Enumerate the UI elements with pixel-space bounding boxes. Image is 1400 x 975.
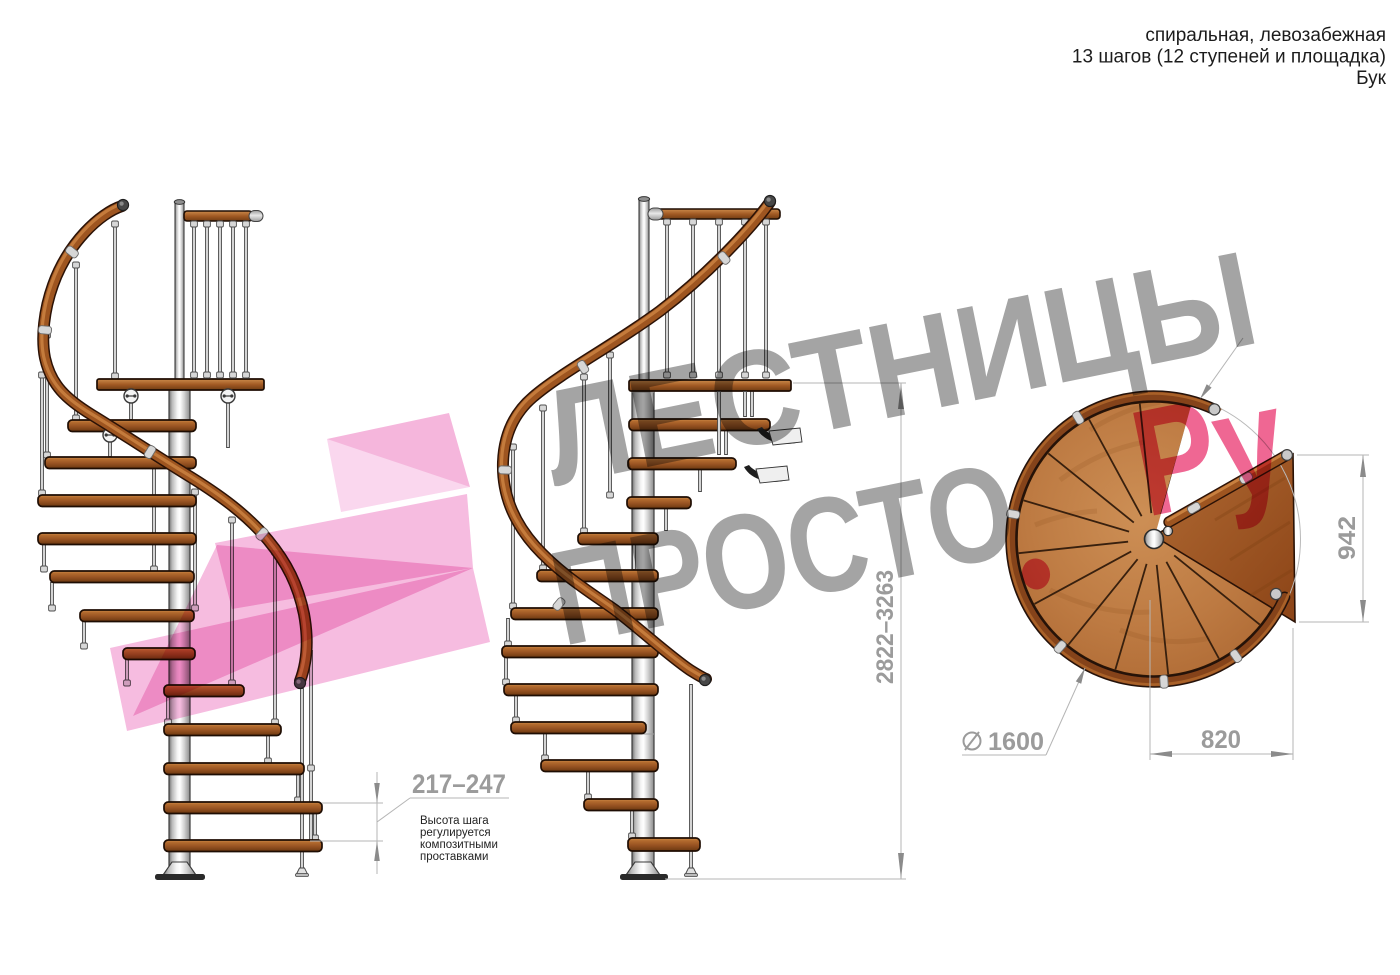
svg-text:проставками: проставками [420,851,488,863]
svg-text:217–247: 217–247 [412,769,506,799]
svg-text:композитными: композитными [420,839,498,851]
svg-text:942: 942 [1334,516,1361,560]
svg-text:Высота шага: Высота шага [420,815,489,827]
svg-text:13 шагов (12 ступеней и площад: 13 шагов (12 ступеней и площадка) [1072,47,1386,68]
svg-text:820: 820 [1201,726,1241,754]
svg-text:регулируется: регулируется [420,827,491,839]
svg-text:Бук: Бук [1356,68,1387,89]
svg-text:спиральная, левозабежная: спиральная, левозабежная [1145,25,1386,46]
svg-text:1600: 1600 [988,728,1044,756]
